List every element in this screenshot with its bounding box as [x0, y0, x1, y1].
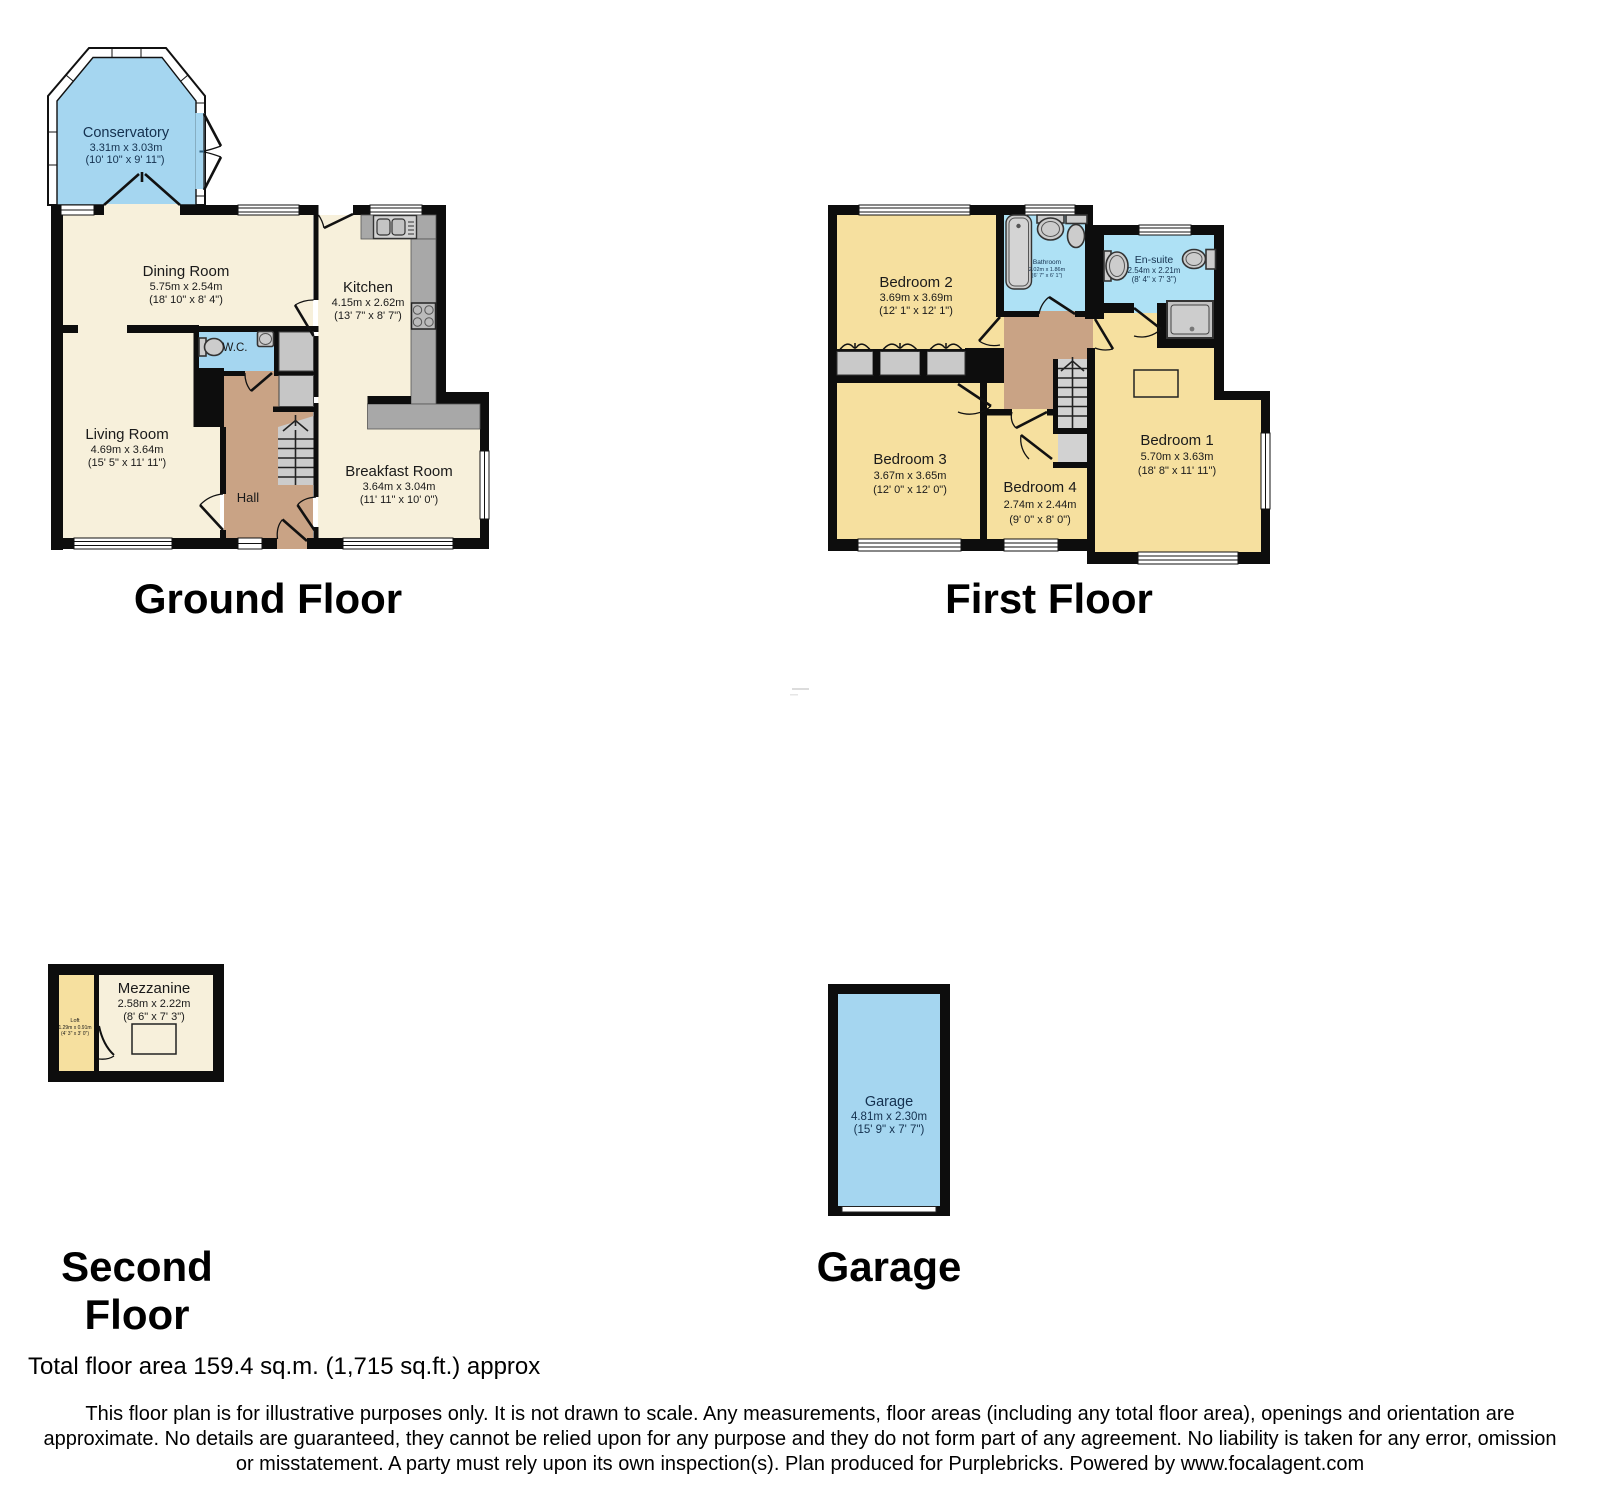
svg-text:Bedroom 2: Bedroom 2 — [879, 274, 952, 291]
svg-text:2.74m x 2.44m: 2.74m x 2.44m — [1004, 499, 1077, 511]
svg-text:Living Room: Living Room — [85, 426, 168, 443]
svg-text:(6' 7" x 6' 1"): (6' 7" x 6' 1") — [1032, 273, 1063, 279]
svg-text:Dining Room: Dining Room — [143, 263, 230, 280]
svg-text:This floor plan is for illustr: This floor plan is for illustrative purp… — [85, 1403, 1514, 1425]
svg-text:Bedroom 3: Bedroom 3 — [873, 451, 946, 468]
svg-text:3.64m x 3.04m: 3.64m x 3.04m — [363, 481, 436, 493]
svg-text:(8' 6" x 7' 3"): (8' 6" x 7' 3") — [123, 1011, 185, 1023]
svg-text:Conservatory: Conservatory — [83, 125, 170, 141]
svg-text:First Floor: First Floor — [945, 575, 1153, 622]
svg-text:or misstatement. A party must: or misstatement. A party must rely upon … — [236, 1453, 1364, 1475]
svg-text:Ground Floor: Ground Floor — [134, 575, 402, 622]
svg-text:(12' 0" x 12' 0"): (12' 0" x 12' 0") — [873, 484, 947, 496]
svg-text:2.58m x 2.22m: 2.58m x 2.22m — [118, 998, 191, 1010]
svg-text:Bathroom: Bathroom — [1033, 259, 1061, 266]
svg-text:3.31m x 3.03m: 3.31m x 3.03m — [90, 142, 163, 154]
svg-text:Garage: Garage — [817, 1243, 962, 1290]
svg-text:(8' 4" x 7' 3"): (8' 4" x 7' 3") — [1132, 275, 1177, 284]
svg-text:Hall: Hall — [237, 490, 260, 505]
svg-text:3.69m x 3.69m: 3.69m x 3.69m — [880, 292, 953, 304]
svg-text:4.15m x 2.62m: 4.15m x 2.62m — [332, 297, 405, 309]
svg-text:Floor: Floor — [85, 1291, 190, 1338]
svg-text:En-suite: En-suite — [1135, 254, 1174, 266]
svg-text:(12' 1" x 12' 1"): (12' 1" x 12' 1") — [879, 305, 953, 317]
svg-text:Bedroom 4: Bedroom 4 — [1003, 479, 1076, 496]
svg-text:(18' 8" x 11' 11"): (18' 8" x 11' 11") — [1138, 465, 1216, 477]
svg-text:(13' 7" x 8' 7"): (13' 7" x 8' 7") — [334, 310, 402, 322]
svg-text:5.70m x 3.63m: 5.70m x 3.63m — [1141, 451, 1214, 463]
svg-text:(15' 9" x 7' 7"): (15' 9" x 7' 7") — [854, 1124, 925, 1136]
svg-text:Kitchen: Kitchen — [343, 279, 393, 296]
svg-text:(4' 3" x 3' 0"): (4' 3" x 3' 0") — [61, 1031, 89, 1037]
svg-text:(11' 11" x 10' 0"): (11' 11" x 10' 0") — [360, 494, 438, 506]
svg-text:(15' 5" x 11' 11"): (15' 5" x 11' 11") — [88, 457, 166, 469]
svg-text:Loft: Loft — [70, 1018, 80, 1024]
svg-text:Bedroom 1: Bedroom 1 — [1140, 432, 1213, 449]
svg-text:2.54m x 2.21m: 2.54m x 2.21m — [1128, 266, 1181, 275]
svg-text:3.67m x 3.65m: 3.67m x 3.65m — [874, 470, 947, 482]
svg-text:(18' 10" x 8' 4"): (18' 10" x 8' 4") — [149, 294, 223, 306]
svg-text:Mezzanine: Mezzanine — [118, 980, 191, 997]
svg-text:Total floor area 159.4 sq.m. (: Total floor area 159.4 sq.m. (1,715 sq.f… — [28, 1353, 540, 1380]
svg-text:4.69m x 3.64m: 4.69m x 3.64m — [91, 444, 164, 456]
svg-text:4.81m x 2.30m: 4.81m x 2.30m — [851, 1111, 927, 1123]
svg-text:W.C.: W.C. — [223, 342, 248, 354]
svg-text:(10' 10" x 9' 11"): (10' 10" x 9' 11") — [85, 154, 164, 166]
svg-text:(9' 0" x 8' 0"): (9' 0" x 8' 0") — [1009, 514, 1071, 526]
svg-text:approximate. No details are gu: approximate. No details are guaranteed, … — [43, 1428, 1556, 1450]
svg-text:5.75m x 2.54m: 5.75m x 2.54m — [150, 281, 223, 293]
svg-text:Breakfast Room: Breakfast Room — [345, 463, 453, 480]
svg-text:Garage: Garage — [865, 1094, 913, 1110]
svg-text:Second: Second — [61, 1243, 213, 1290]
